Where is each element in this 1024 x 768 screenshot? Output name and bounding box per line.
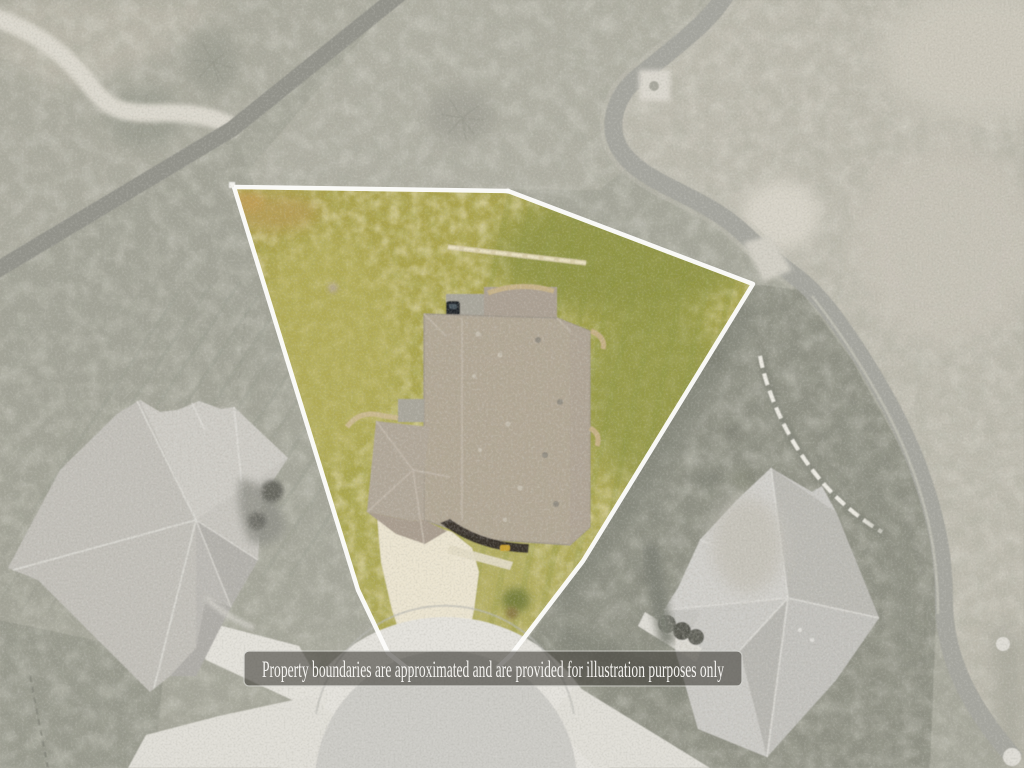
svg-text:Property boundaries are approx: Property boundaries are approximated and… (262, 657, 724, 683)
